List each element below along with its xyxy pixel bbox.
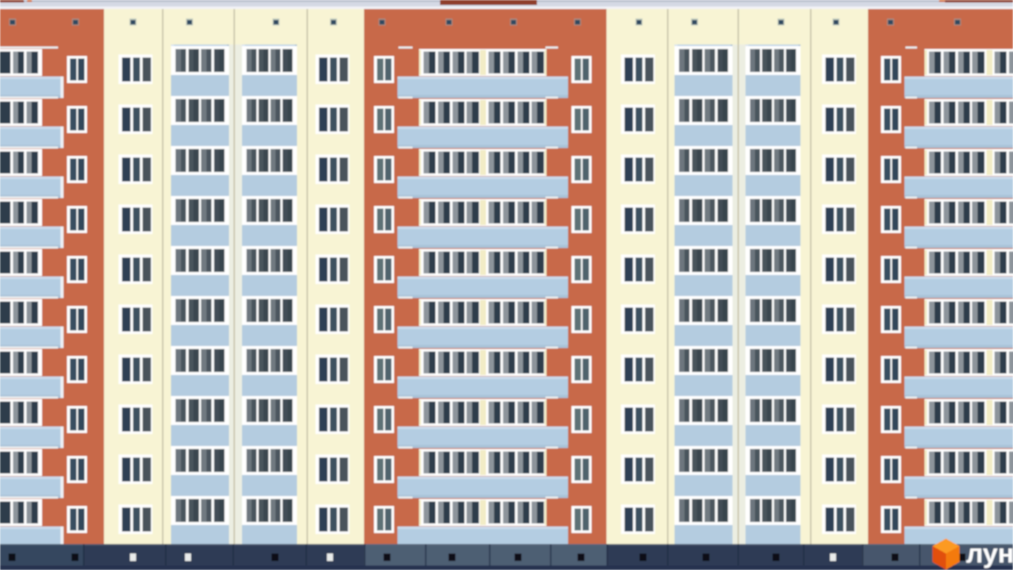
svg-text:лун: лун — [966, 539, 1013, 569]
